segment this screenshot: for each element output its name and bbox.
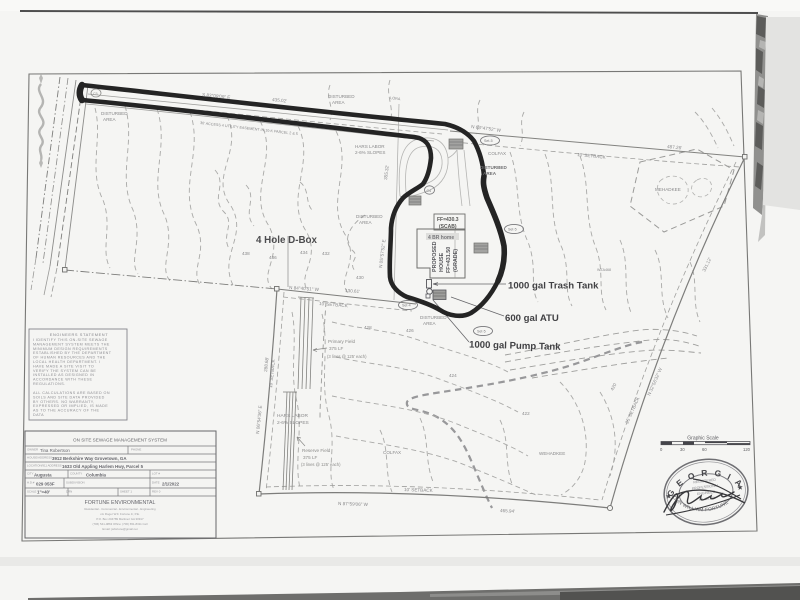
svg-text:SCALE: SCALE	[27, 490, 37, 494]
svg-text:MEHADKEE: MEHADKEE	[655, 187, 681, 192]
svg-text:C5: C5	[93, 92, 98, 96]
svg-text:029 053F: 029 053F	[36, 482, 55, 487]
svg-text:Set-4: Set-4	[402, 304, 411, 308]
svg-text:C4: C4	[427, 189, 432, 193]
svg-text:P.O. Box 204789 Martinez GA: P.O. Box 204789 Martinez GA 30917	[96, 517, 144, 521]
svg-text:375 LF: 375 LF	[303, 455, 317, 460]
svg-text:(GRADE): (GRADE)	[453, 249, 459, 272]
svg-text:PROPOSED: PROPOSED	[432, 241, 438, 272]
svg-text:Set-5: Set-5	[484, 139, 493, 143]
svg-text:N 87°59'06" W: N 87°59'06" W	[338, 501, 369, 507]
svg-text:REV 0: REV 0	[152, 490, 161, 494]
svg-text:COUNTY: COUNTY	[70, 472, 82, 476]
svg-text:436: 436	[269, 255, 277, 260]
svg-text:OF HUMAN RESOURCES AND THE: OF HUMAN RESOURCES AND THE	[33, 356, 106, 360]
svg-text:2-6% SLOPES: 2-6% SLOPES	[277, 420, 309, 426]
svg-text:LOT #: LOT #	[152, 472, 160, 476]
svg-text:MANAGEMENT SYSTEM MEETS THE: MANAGEMENT SYSTEM MEETS THE	[33, 342, 110, 346]
svg-text:30: 30	[680, 447, 685, 452]
svg-text:INSTALLED AS DESIGNED IN: INSTALLED AS DESIGNED IN	[33, 373, 94, 377]
svg-text:130.61': 130.61'	[345, 288, 360, 294]
svg-text:426: 426	[406, 328, 414, 333]
svg-text:HOUSE: HOUSE	[439, 252, 445, 272]
svg-text:AREA: AREA	[359, 220, 372, 225]
svg-text:HAVE MADE A SITE VISIT TO: HAVE MADE A SITE VISIT TO	[33, 364, 94, 368]
svg-text:HARS LABOR: HARS LABOR	[277, 413, 308, 419]
svg-text:BY OTHERS. NO WARRANTY,: BY OTHERS. NO WARRANTY,	[33, 400, 95, 404]
svg-text:(3 lines @ 125' each): (3 lines @ 125' each)	[327, 354, 367, 359]
svg-text:Residential - Commercial - Env: Residential - Commercial - Environmental…	[84, 507, 156, 511]
svg-text:REGULATIONS.: REGULATIONS.	[33, 382, 66, 386]
svg-text:WEHADKEE: WEHADKEE	[539, 451, 565, 456]
svg-text:AS TO THE ACCURACY OF THE: AS TO THE ACCURACY OF THE	[33, 409, 100, 413]
svg-text:(3 lines @ 125' each): (3 lines @ 125' each)	[301, 462, 341, 467]
svg-text:Primary Field: Primary Field	[328, 339, 356, 344]
svg-text:H.D.#: H.D.#	[27, 481, 35, 485]
svg-text:DRN: DRN	[66, 490, 72, 494]
svg-text:Augusta: Augusta	[34, 473, 52, 478]
svg-text:Set-5: Set-5	[477, 330, 486, 334]
svg-text:3912 Berkshire Way Grovetown,: 3912 Berkshire Way Grovetown, GA	[52, 456, 127, 461]
svg-text:COLFAX: COLFAX	[488, 151, 506, 156]
svg-text:DATE: DATE	[152, 481, 160, 485]
svg-text:4 BR home: 4 BR home	[428, 235, 454, 241]
svg-text:600 gal ATU: 600 gal ATU	[505, 313, 559, 324]
svg-text:1633 Old Appling Harlem Hwy, P: 1633 Old Appling Harlem Hwy, Parcel 5	[62, 464, 144, 469]
svg-text:SOILS AND SITE DATA PROVIDED: SOILS AND SITE DATA PROVIDED	[33, 395, 105, 399]
svg-text:DATA: DATA	[33, 413, 44, 417]
svg-text:10' SETBACK: 10' SETBACK	[404, 487, 434, 493]
svg-text:DISTURBED: DISTURBED	[420, 315, 447, 320]
svg-text:★: ★	[736, 482, 744, 492]
svg-text:428: 428	[364, 325, 372, 330]
svg-text:ENGINEERS STATEMENT: ENGINEERS STATEMENT	[50, 332, 108, 337]
svg-text:CITY: CITY	[27, 472, 34, 476]
svg-text:AREA: AREA	[332, 100, 345, 105]
svg-text:465.94': 465.94'	[500, 508, 515, 514]
svg-text:FF=431.50: FF=431.50	[446, 247, 452, 273]
svg-text:LOCATION/911 ADDRESS: LOCATION/911 ADDRESS	[27, 464, 62, 468]
svg-text:120: 120	[743, 447, 751, 452]
svg-text:438: 438	[242, 251, 250, 256]
svg-text:MINIMUM DESIGN REQUIREMENTS: MINIMUM DESIGN REQUIREMENTS	[33, 347, 108, 351]
svg-text:4 Hole D-Box: 4 Hole D-Box	[256, 235, 318, 246]
svg-text:AREA: AREA	[483, 171, 497, 176]
svg-text:ESTABLISHED BY THE DEPARTMENT: ESTABLISHED BY THE DEPARTMENT	[33, 351, 112, 355]
svg-text:DISTURBED: DISTURBED	[328, 94, 355, 99]
svg-text:DISTURBED: DISTURBED	[101, 111, 128, 116]
svg-text:1"=40': 1"=40'	[37, 490, 50, 495]
svg-text:ACCORDANCE WITH THESE: ACCORDANCE WITH THESE	[33, 378, 92, 382]
svg-text:LOCAL HEALTH DEPARTMENT. I: LOCAL HEALTH DEPARTMENT. I	[33, 360, 101, 364]
svg-text:1000 gal Trash Tank: 1000 gal Trash Tank	[508, 281, 599, 292]
svg-text:FF=430.3: FF=430.3	[437, 217, 459, 223]
svg-text:VERIFY THE SYSTEM CAN BE: VERIFY THE SYSTEM CAN BE	[33, 369, 96, 373]
svg-text:2/1/2022: 2/1/2022	[162, 482, 180, 487]
svg-text:DISTURBED: DISTURBED	[356, 214, 383, 219]
svg-text:2-6% SLOPES: 2-6% SLOPES	[355, 150, 385, 155]
svg-text:60: 60	[702, 447, 707, 452]
svg-text:OWNER: OWNER	[27, 448, 38, 452]
svg-text:424: 424	[449, 373, 457, 378]
svg-text:WZA468: WZA468	[597, 268, 611, 272]
svg-text:EXPRESSED OR IMPLIED, IS MADE: EXPRESSED OR IMPLIED, IS MADE	[33, 404, 108, 408]
svg-text:FORTUNE ENVIRONMENTAL: FORTUNE ENVIRONMENTAL	[85, 500, 156, 506]
svg-text:ALL CALCULATIONS ARE BASED ON: ALL CALCULATIONS ARE BASED ON	[33, 391, 110, 395]
svg-text:HOUSE/ADDRESS: HOUSE/ADDRESS	[27, 456, 52, 460]
svg-text:(SCAB): (SCAB)	[439, 224, 457, 230]
svg-text:ON SITE SEWAGE MANAGEMENT SYST: ON SITE SEWAGE MANAGEMENT SYSTEM	[73, 438, 167, 443]
svg-text:434: 434	[300, 250, 308, 255]
svg-text:375 LF: 375 LF	[329, 346, 343, 351]
svg-text:c/o Roger W.F. Fortune Jr, P.E: c/o Roger W.F. Fortune Jr, P.E.	[100, 512, 140, 516]
svg-text:Columbia: Columbia	[86, 473, 107, 478]
svg-text:Email: jwfortune@gmail.net: Email: jwfortune@gmail.net	[102, 527, 137, 531]
svg-text:Graphic Scale: Graphic Scale	[687, 436, 719, 442]
svg-text:Tina Robertson: Tina Robertson	[40, 448, 70, 453]
svg-text:DISTURBED: DISTURBED	[480, 165, 507, 170]
svg-text:432: 432	[322, 251, 330, 256]
svg-text:422: 422	[522, 411, 530, 416]
svg-text:Reserve Field: Reserve Field	[302, 448, 331, 453]
svg-text:I IDENTIFY THIS ON-SITE SEWAGE: I IDENTIFY THIS ON-SITE SEWAGE	[33, 338, 108, 342]
svg-text:(706) 541-0863 Office: (706): (706) 541-0863 Office: (706) 651-8311 Ce…	[92, 522, 147, 526]
svg-text:430: 430	[356, 275, 364, 280]
svg-text:HARS LABOR: HARS LABOR	[355, 144, 385, 149]
svg-text:SHEET 1: SHEET 1	[120, 490, 132, 494]
svg-text:AREA: AREA	[423, 321, 436, 326]
svg-text:AREA: AREA	[103, 117, 116, 122]
svg-text:COLFAX: COLFAX	[383, 450, 401, 455]
svg-text:PHONE: PHONE	[131, 448, 141, 452]
svg-text:Set-5: Set-5	[508, 228, 517, 232]
svg-text:SUBDIVISION: SUBDIVISION	[66, 481, 85, 485]
